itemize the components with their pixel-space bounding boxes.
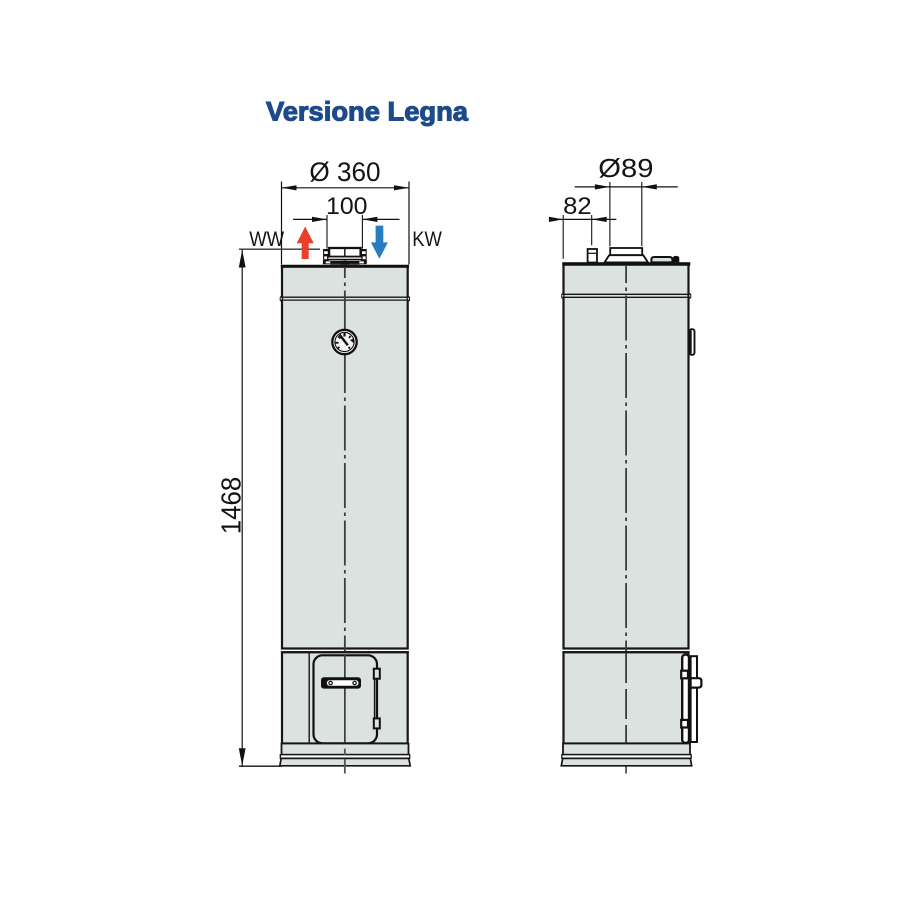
- svg-text:Ø89: Ø89: [598, 153, 653, 183]
- svg-text:Versione Legna: Versione Legna: [266, 96, 469, 126]
- svg-text:WW: WW: [249, 228, 284, 251]
- svg-text:Ø 360: Ø 360: [309, 157, 380, 187]
- svg-text:82: 82: [563, 193, 592, 220]
- svg-text:1468: 1468: [216, 477, 247, 535]
- svg-text:KW: KW: [412, 228, 442, 251]
- svg-text:100: 100: [326, 193, 368, 220]
